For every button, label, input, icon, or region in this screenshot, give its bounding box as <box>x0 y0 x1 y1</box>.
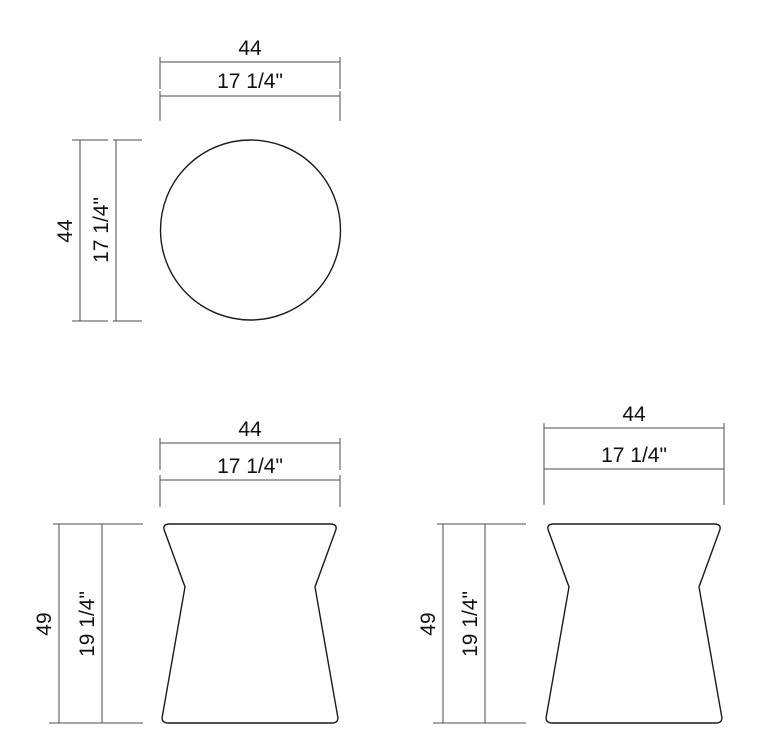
top-view: 44 17 1/4" 44 17 1/4" <box>54 37 341 321</box>
side-view-height-in-dim-line <box>475 524 526 723</box>
front-view-width-in-label: 17 1/4" <box>217 455 283 478</box>
side-view-width-in-label: 17 1/4" <box>601 444 667 467</box>
top-view-depth-cm-label: 44 <box>54 219 77 243</box>
stool-side-outline <box>546 524 722 723</box>
front-view-height-cm-label: 49 <box>33 612 56 635</box>
side-view-width-in-dim-line <box>544 464 724 505</box>
front-view-height-in-dim-line <box>92 524 143 723</box>
front-view-height-in-label: 19 1/4" <box>76 591 99 657</box>
side-view: 44 17 1/4" 49 19 1/4" <box>417 403 724 723</box>
top-view-depth-in-dim-line <box>113 140 142 321</box>
top-view-width-in-dim-line <box>160 91 340 121</box>
tabletop-circle-outline <box>161 140 341 320</box>
front-view-width-in-dim-line <box>160 475 340 507</box>
drawing-svg: 44 17 1/4" 44 17 1/4" 44 17 1/4" 49 19 1… <box>0 0 777 743</box>
side-view-width-cm-label: 44 <box>622 403 646 426</box>
dimension-drawing: 44 17 1/4" 44 17 1/4" 44 17 1/4" 49 19 1… <box>0 0 777 743</box>
side-view-height-in-label: 19 1/4" <box>459 591 482 657</box>
side-view-height-cm-label: 49 <box>417 612 440 635</box>
top-view-depth-in-label: 17 1/4" <box>90 197 113 263</box>
top-view-width-in-label: 17 1/4" <box>217 70 283 93</box>
front-view: 44 17 1/4" 49 19 1/4" <box>33 418 340 723</box>
top-view-width-cm-label: 44 <box>238 37 262 60</box>
front-view-width-cm-label: 44 <box>238 418 262 441</box>
stool-front-outline <box>162 524 338 723</box>
